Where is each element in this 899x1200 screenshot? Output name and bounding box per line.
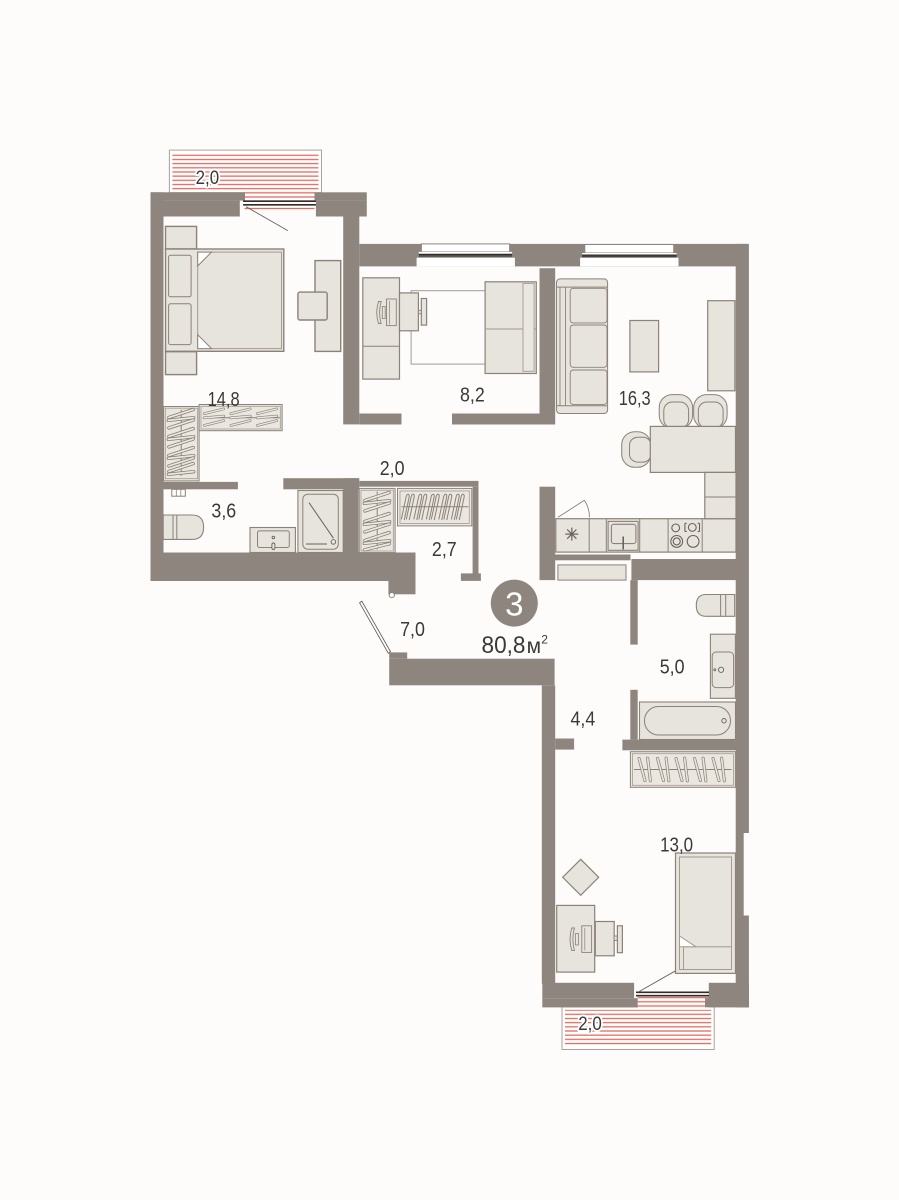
svg-text:16,3: 16,3 [619,387,651,410]
svg-text:13,0: 13,0 [660,833,693,856]
svg-text:8,2: 8,2 [460,383,485,406]
svg-text:2,0: 2,0 [196,167,220,189]
svg-text:2,0: 2,0 [380,457,405,480]
svg-text:7,0: 7,0 [400,618,425,641]
svg-text:2: 2 [541,633,548,647]
svg-text:3,6: 3,6 [211,499,236,522]
svg-text:м: м [527,635,541,658]
svg-text:14,8: 14,8 [208,388,240,411]
svg-text:4,4: 4,4 [571,708,596,731]
svg-text:5,0: 5,0 [660,655,685,678]
svg-text:2,0: 2,0 [578,1013,602,1035]
svg-text:2,7: 2,7 [432,538,457,561]
svg-text:3: 3 [505,585,523,622]
svg-text:80,8: 80,8 [482,632,526,659]
